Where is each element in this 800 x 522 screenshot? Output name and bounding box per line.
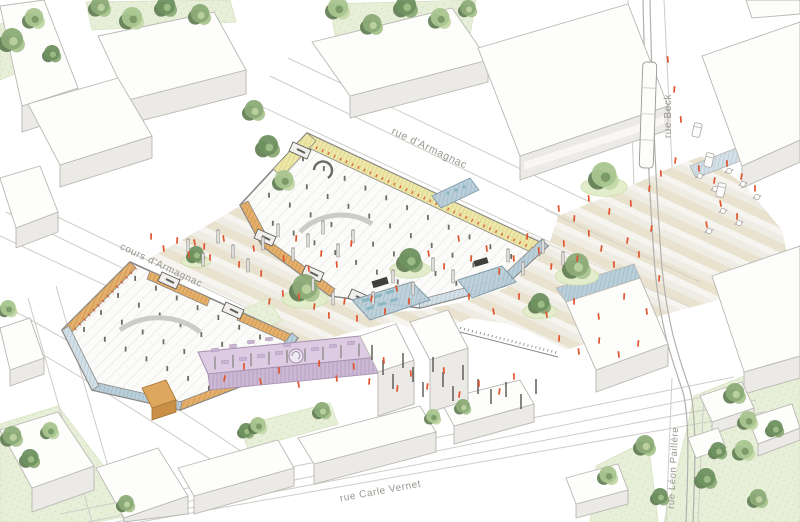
plaza-post	[332, 292, 335, 305]
terrace-lounger	[239, 357, 246, 361]
person-marker	[638, 251, 640, 257]
plaza-post	[562, 252, 565, 265]
street-label-rue-beck: rue Beck	[663, 93, 674, 138]
terrace-lounger	[347, 341, 354, 345]
plaza-post	[292, 248, 295, 261]
plaza-post	[247, 259, 250, 272]
tree	[88, 0, 111, 17]
person-marker	[513, 373, 515, 379]
plaza-post	[307, 234, 310, 247]
person-marker	[468, 293, 470, 299]
plaza-post	[202, 253, 205, 266]
plaza-post	[322, 221, 325, 234]
terrace-lounger	[265, 337, 272, 341]
plaza-post	[232, 245, 235, 258]
plaza-post	[337, 244, 340, 257]
terrace-lounger	[247, 340, 254, 344]
person-marker	[243, 363, 245, 369]
plaza-post	[452, 270, 455, 283]
person-marker	[408, 298, 410, 304]
person-marker	[384, 308, 386, 314]
terrace-lounger	[257, 354, 264, 358]
plaza-post	[277, 224, 280, 237]
plaza-post	[262, 237, 265, 250]
plaza-post	[392, 270, 395, 283]
person-marker	[209, 254, 211, 260]
person-marker	[754, 185, 756, 191]
person-marker	[518, 293, 520, 299]
person-marker	[726, 160, 728, 166]
axonometric-scene: rue d'Armagnaccours d'Armagnacrue Beckru…	[0, 0, 800, 522]
plaza-post	[522, 262, 525, 275]
tree	[393, 0, 418, 18]
tree	[154, 0, 177, 17]
plaza-post	[187, 239, 190, 252]
person-marker	[278, 367, 280, 373]
plaza-post	[432, 258, 435, 271]
terrace-lounger	[329, 344, 336, 348]
terrace-lounger	[283, 343, 290, 347]
terrace-lounger	[275, 351, 282, 355]
terrace-lounger	[229, 344, 236, 348]
terrace-lounger	[311, 347, 318, 351]
plaza-post	[542, 240, 545, 253]
terrace-lounger	[211, 348, 218, 352]
plaza-post	[217, 230, 220, 243]
plaza-post	[312, 278, 315, 291]
plaza-post	[507, 249, 510, 262]
site-plan-illustration: rue d'Armagnaccours d'Armagnacrue Beckru…	[0, 0, 800, 522]
terrace-lounger	[221, 360, 228, 364]
person-marker	[356, 315, 358, 321]
person-marker	[736, 213, 738, 219]
plaza-post	[412, 282, 415, 295]
